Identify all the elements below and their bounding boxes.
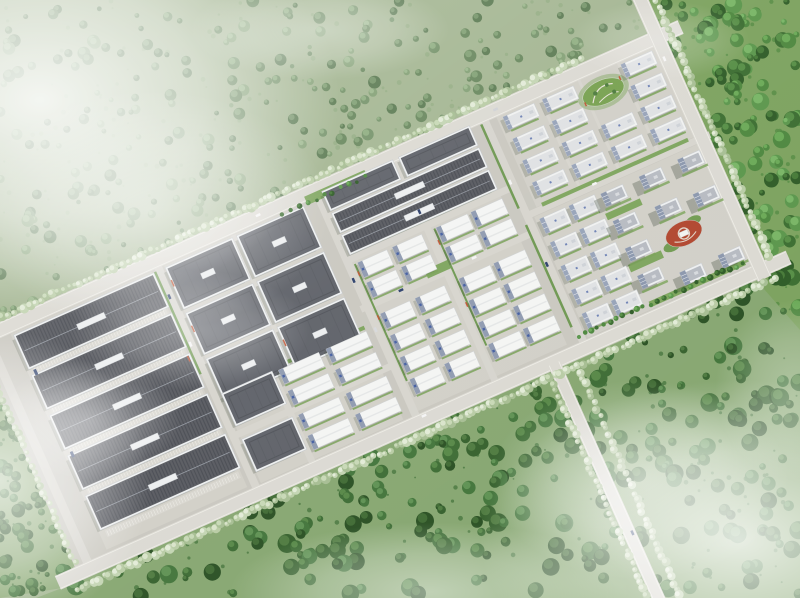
scene-svg (0, 0, 800, 598)
architectural-aerial-rendering (0, 0, 800, 598)
atmospheric-veil (0, 0, 800, 598)
